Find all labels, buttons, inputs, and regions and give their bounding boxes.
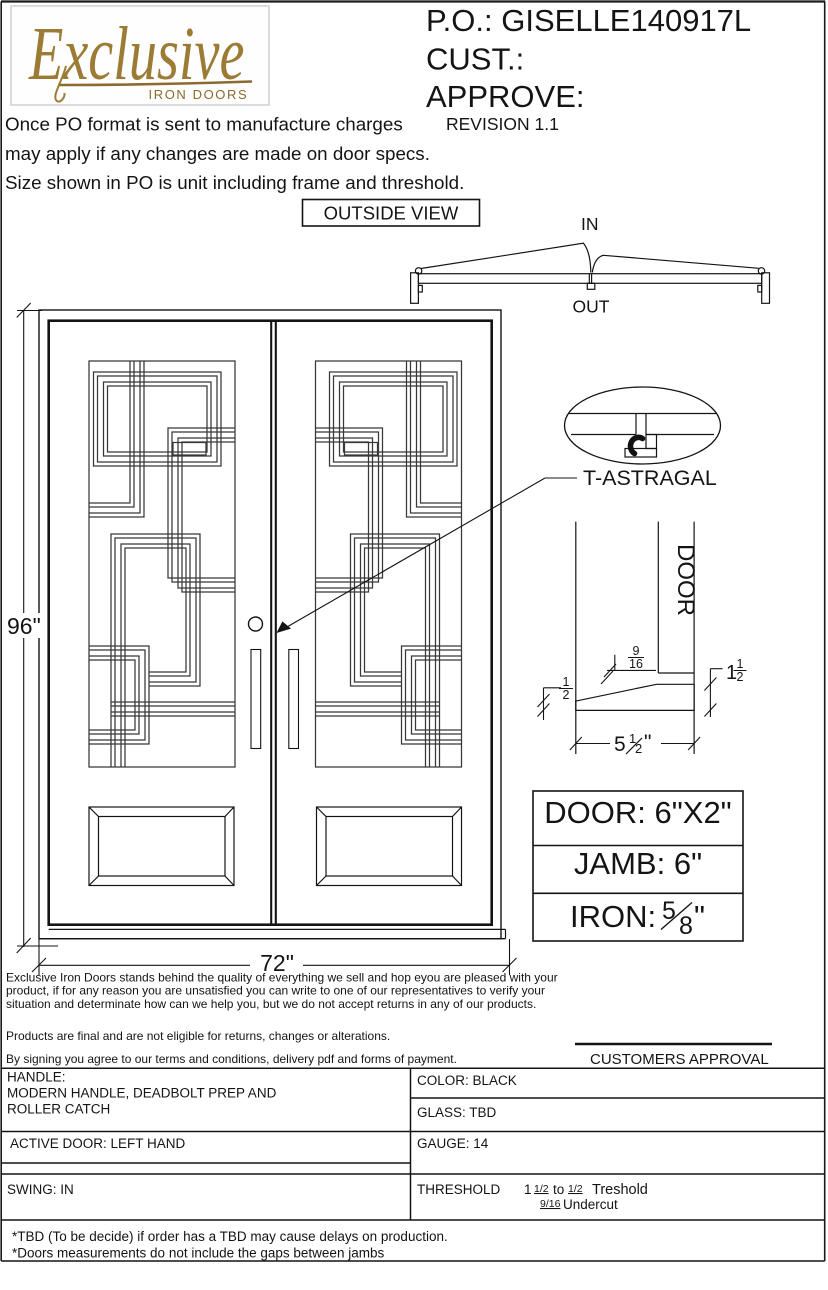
svg-text:GAUGE: 14: GAUGE: 14 xyxy=(417,1136,489,1151)
svg-text:1/2: 1/2 xyxy=(534,1183,549,1195)
svg-text:IRON DOORS: IRON DOORS xyxy=(149,87,249,102)
svg-text:REVISION 1.1: REVISION 1.1 xyxy=(446,114,559,134)
svg-text:*Doors measurements do not inc: *Doors measurements do not include the g… xyxy=(12,1246,384,1261)
svg-text:ROLLER CATCH: ROLLER CATCH xyxy=(7,1102,110,1117)
svg-text:Exclusive Iron Doors stands be: Exclusive Iron Doors stands behind the q… xyxy=(6,971,558,985)
svg-text:IRON:: IRON: xyxy=(570,899,656,934)
svg-text:By signing you agree to our te: By signing you agree to our terms and co… xyxy=(6,1052,457,1066)
svg-text:1: 1 xyxy=(737,657,744,671)
svg-text:": " xyxy=(644,731,651,754)
svg-text:OUTSIDE VIEW: OUTSIDE VIEW xyxy=(324,203,459,224)
svg-text:SWING: IN: SWING: IN xyxy=(7,1182,74,1197)
svg-text:96": 96" xyxy=(7,613,41,639)
svg-text:product, if for any reason you: product, if for any reason you are unsat… xyxy=(6,984,545,998)
svg-text:Treshold: Treshold xyxy=(592,1182,648,1198)
svg-text:*TBD (To be decide) if order h: *TBD (To be decide) if order has a TBD m… xyxy=(12,1229,448,1244)
svg-text:GLASS: TBD: GLASS: TBD xyxy=(417,1105,497,1120)
svg-text:to: to xyxy=(553,1182,564,1197)
svg-text:8: 8 xyxy=(679,912,693,940)
svg-text:1: 1 xyxy=(524,1182,532,1197)
svg-text:OUT: OUT xyxy=(573,297,610,317)
svg-text:16: 16 xyxy=(629,657,643,671)
svg-text:5: 5 xyxy=(614,733,626,756)
svg-text:2: 2 xyxy=(737,670,744,684)
svg-text:9/16: 9/16 xyxy=(540,1198,561,1210)
svg-text:HANDLE:: HANDLE: xyxy=(7,1070,66,1085)
svg-text:1: 1 xyxy=(726,662,737,684)
svg-text:DOOR: DOOR xyxy=(672,544,699,616)
svg-text:1/2: 1/2 xyxy=(568,1183,583,1195)
svg-text:Products are final and are not: Products are final and are not eligible … xyxy=(6,1029,390,1043)
svg-text:": " xyxy=(694,899,705,934)
svg-text:CUST.:: CUST.: xyxy=(426,42,524,77)
svg-text:Once PO format is sent to manu: Once PO format is sent to manufacture ch… xyxy=(5,114,403,135)
svg-text:situation and determinate how: situation and determinate how can we hel… xyxy=(6,997,536,1011)
svg-text:THRESHOLD: THRESHOLD xyxy=(417,1182,501,1197)
svg-text:COLOR: BLACK: COLOR: BLACK xyxy=(417,1073,517,1088)
svg-text:Size shown in PO is unit inclu: Size shown in PO is unit including frame… xyxy=(5,172,464,193)
svg-text:ACTIVE DOOR: LEFT HAND: ACTIVE DOOR: LEFT HAND xyxy=(10,1136,186,1151)
svg-text:5: 5 xyxy=(662,897,676,925)
svg-text:9: 9 xyxy=(633,644,640,658)
svg-text:2: 2 xyxy=(563,688,570,702)
svg-text:MODERN HANDLE, DEADBOLT PREP A: MODERN HANDLE, DEADBOLT PREP AND xyxy=(7,1086,277,1101)
svg-text:IN: IN xyxy=(581,214,599,234)
svg-text:CUSTOMERS APPROVAL: CUSTOMERS APPROVAL xyxy=(590,1051,769,1068)
svg-text:P.O.: GISELLE140917L: P.O.: GISELLE140917L xyxy=(426,3,751,38)
svg-text:Undercut: Undercut xyxy=(563,1197,618,1212)
svg-text:APPROVE:: APPROVE: xyxy=(426,79,585,114)
svg-text:JAMB: 6": JAMB: 6" xyxy=(574,846,702,881)
svg-text:T-ASTRAGAL: T-ASTRAGAL xyxy=(583,466,717,490)
svg-text:DOOR: 6"X2": DOOR: 6"X2" xyxy=(544,795,731,830)
svg-text:1: 1 xyxy=(563,675,570,689)
svg-text:may apply if any changes are m: may apply if any changes are made on doo… xyxy=(5,143,430,164)
